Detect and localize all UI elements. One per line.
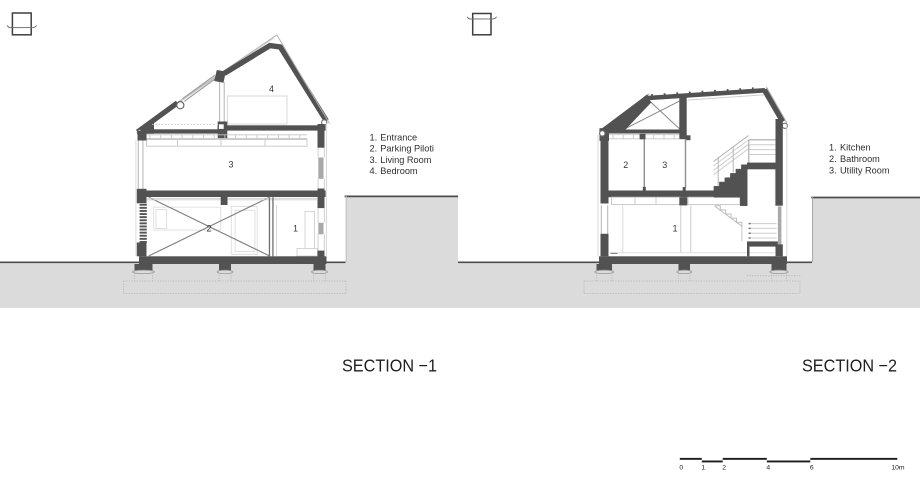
svg-text:0: 0: [679, 465, 683, 472]
svg-text:4: 4: [269, 84, 274, 94]
svg-text:Utility Room: Utility Room: [840, 165, 890, 175]
svg-text:4: 4: [766, 465, 770, 472]
svg-text:Entrance: Entrance: [380, 132, 417, 142]
svg-text:6: 6: [810, 465, 814, 472]
svg-text:1: 1: [701, 465, 705, 472]
svg-text:10m: 10m: [891, 465, 905, 472]
svg-text:3.: 3.: [370, 155, 378, 165]
svg-text:2: 2: [623, 160, 628, 170]
svg-text:4.: 4.: [370, 166, 378, 176]
svg-text:1: 1: [293, 224, 298, 234]
svg-text:2: 2: [722, 465, 726, 472]
svg-text:1.: 1.: [370, 132, 378, 142]
svg-text:2.: 2.: [829, 154, 837, 164]
svg-text:1.: 1.: [829, 143, 837, 153]
svg-text:Parking Piloti: Parking Piloti: [380, 144, 434, 154]
svg-text:2: 2: [206, 224, 211, 234]
svg-text:SECTION −1: SECTION −1: [342, 356, 437, 376]
svg-text:Bedroom: Bedroom: [380, 166, 418, 176]
svg-text:Kitchen: Kitchen: [840, 143, 871, 153]
svg-text:2.: 2.: [370, 144, 378, 154]
svg-text:1: 1: [672, 224, 677, 234]
svg-text:SECTION −2: SECTION −2: [802, 356, 897, 376]
svg-text:Living Room: Living Room: [380, 155, 431, 165]
svg-text:3: 3: [228, 160, 233, 170]
svg-text:3: 3: [662, 160, 667, 170]
svg-text:3.: 3.: [829, 165, 837, 175]
svg-text:Bathroom: Bathroom: [840, 154, 880, 164]
